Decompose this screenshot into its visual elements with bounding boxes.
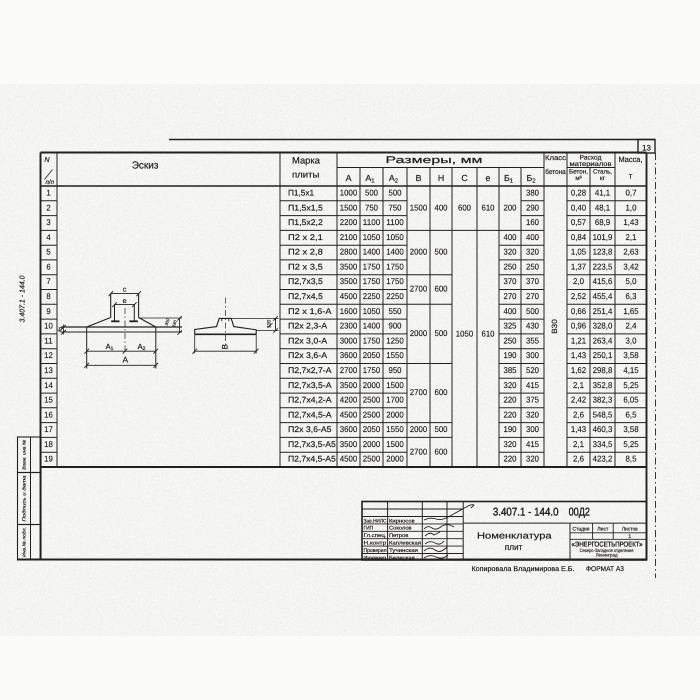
svg-text:Номенклатура: Номенклатура [477,531,552,541]
svg-text:9: 9 [46,307,51,316]
svg-text:0,66: 0,66 [571,306,587,316]
svg-text:Марка: Марка [292,155,321,166]
svg-text:300: 300 [526,424,539,434]
svg-text:1100: 1100 [386,217,404,227]
svg-text:4500: 4500 [340,291,358,301]
svg-text:520: 520 [526,365,539,375]
svg-text:220: 220 [504,454,517,464]
svg-text:500: 500 [389,188,402,198]
svg-text:320: 320 [526,247,539,257]
svg-text:П2,7х3,5-А: П2,7х3,5-А [288,381,332,390]
svg-text:1,62: 1,62 [571,365,587,375]
svg-text:3500: 3500 [340,276,358,286]
svg-text:П2х 3,6-А5: П2х 3,6-А5 [288,425,332,434]
svg-text:00Д2: 00Д2 [569,507,590,519]
svg-text:400: 400 [526,232,539,242]
svg-text:400: 400 [435,202,448,212]
svg-text:Размеры, мм: Размеры, мм [386,155,483,166]
svg-text:1750: 1750 [363,261,381,271]
svg-text:6,5: 6,5 [626,409,637,419]
svg-text:П1,5х2,2: П1,5х2,2 [288,218,323,227]
svg-text:1550: 1550 [386,350,404,360]
svg-text:352,8: 352,8 [593,380,613,390]
svg-text:2500: 2500 [363,395,381,405]
svg-text:т: т [629,172,633,181]
svg-text:3500: 3500 [340,380,358,390]
svg-text:1050: 1050 [456,328,474,338]
svg-text:600: 600 [435,387,448,397]
svg-text:415,6: 415,6 [593,276,613,286]
svg-text:2700: 2700 [410,284,428,294]
svg-text:3600: 3600 [340,424,358,434]
svg-text:Класс: Класс [545,155,567,162]
svg-text:4500: 4500 [340,409,358,419]
svg-text:220: 220 [504,395,517,405]
svg-text:П1,5х1: П1,5х1 [288,189,315,198]
svg-text:13: 13 [642,144,651,153]
svg-text:200: 200 [504,202,517,212]
svg-text:18: 18 [44,440,53,449]
svg-text:1,05: 1,05 [571,247,587,257]
svg-text:375: 375 [526,395,539,405]
svg-text:В: В [416,173,422,183]
svg-text:320: 320 [526,409,539,419]
svg-text:2050: 2050 [363,350,381,360]
svg-text:950: 950 [389,365,402,375]
svg-text:3500: 3500 [340,261,358,271]
svg-text:П2,7х3,5-А5: П2,7х3,5-А5 [288,440,336,449]
svg-text:Гл.спец.: Гл.спец. [364,533,387,539]
svg-text:3: 3 [46,218,51,227]
svg-text:2,42: 2,42 [571,395,587,405]
svg-text:3.407.1 - 144.0: 3.407.1 - 144.0 [18,276,27,323]
svg-text:5: 5 [46,248,51,257]
svg-text:N: N [44,155,50,164]
svg-text:14: 14 [44,381,53,390]
svg-text:250,1: 250,1 [593,350,613,360]
svg-text:415: 415 [526,380,539,390]
svg-text:2000: 2000 [386,454,404,464]
svg-text:Кирносов: Кирносов [389,518,415,524]
svg-text:ГИП: ГИП [364,526,374,532]
svg-text:П2х 3,6-А: П2х 3,6-А [288,351,328,360]
svg-text:Копировала Владимирова Е.Б.: Копировала Владимирова Е.Б. [472,566,575,573]
svg-text:2,1: 2,1 [626,232,637,242]
svg-text:263,4: 263,4 [593,335,613,345]
svg-text:1750: 1750 [363,335,381,345]
svg-text:П2,7х3,5: П2,7х3,5 [288,277,323,286]
svg-text:1750: 1750 [386,261,404,271]
svg-text:П2 х 2,1: П2 х 2,1 [288,233,323,242]
svg-text:600: 600 [435,446,448,456]
svg-text:2,52: 2,52 [571,291,587,301]
svg-text:1000: 1000 [340,188,358,198]
svg-text:15: 15 [44,396,53,405]
svg-text:П2,7х2,7-А: П2,7х2,7-А [288,366,332,375]
svg-text:17: 17 [44,425,53,434]
svg-text:190: 190 [504,424,517,434]
svg-text:1,21: 1,21 [571,335,587,345]
svg-text:19: 19 [44,455,53,464]
svg-text:1,37: 1,37 [571,261,587,271]
svg-text:1700: 1700 [386,395,404,405]
svg-text:298,8: 298,8 [593,365,613,375]
svg-text:334,5: 334,5 [593,439,613,449]
svg-text:2,4: 2,4 [626,321,637,331]
svg-text:П2,7х4,5-А: П2,7х4,5-А [288,410,332,419]
svg-text:2,63: 2,63 [623,247,639,257]
svg-text:1750: 1750 [363,276,381,286]
svg-text:270: 270 [526,291,539,301]
svg-text:7: 7 [46,277,51,286]
svg-text:1600: 1600 [340,306,358,316]
svg-text:320: 320 [504,380,517,390]
svg-text:2,6: 2,6 [573,409,584,419]
svg-text:320: 320 [504,439,517,449]
svg-text:500: 500 [435,328,448,338]
svg-text:4: 4 [46,233,51,242]
svg-text:2300: 2300 [340,321,358,331]
svg-text:3,58: 3,58 [623,350,639,360]
svg-text:4200: 4200 [340,395,358,405]
svg-text:2100: 2100 [340,232,358,242]
svg-text:1750: 1750 [386,276,404,286]
svg-text:325: 325 [504,321,517,331]
svg-text:610: 610 [482,202,495,212]
svg-text:1,65: 1,65 [623,306,639,316]
svg-text:3600: 3600 [340,350,358,360]
svg-text:6,3: 6,3 [626,291,637,301]
svg-text:320: 320 [526,454,539,464]
svg-text:5,25: 5,25 [623,439,639,449]
svg-text:2000: 2000 [386,409,404,419]
svg-text:370: 370 [526,276,539,286]
svg-text:8: 8 [46,292,51,301]
svg-text:251,4: 251,4 [593,306,613,316]
svg-text:С: С [461,173,468,183]
svg-text:1,43: 1,43 [571,350,587,360]
svg-text:382,3: 382,3 [593,395,613,405]
svg-text:Эскиз: Эскиз [132,161,159,172]
svg-text:300: 300 [526,350,539,360]
svg-text:415: 415 [526,439,539,449]
svg-text:П2х 3,0-А: П2х 3,0-А [288,336,328,345]
svg-text:Листов: Листов [622,526,638,532]
svg-text:1400: 1400 [363,321,381,331]
svg-text:1250: 1250 [386,335,404,345]
svg-text:2250: 2250 [363,291,381,301]
svg-text:455,4: 455,4 [593,291,613,301]
svg-text:1,43: 1,43 [623,217,639,227]
svg-text:2700: 2700 [410,446,428,456]
svg-text:2500: 2500 [363,454,381,464]
svg-text:Н: Н [438,173,444,183]
svg-text:600: 600 [458,202,471,212]
svg-text:0,96: 0,96 [571,321,587,331]
svg-text:0,84: 0,84 [571,232,587,242]
svg-text:250: 250 [504,335,517,345]
svg-text:В: В [221,344,230,349]
svg-text:3000: 3000 [340,335,358,345]
svg-text:Н.контр: Н.контр [364,541,387,547]
svg-text:1050: 1050 [363,232,381,242]
svg-text:м³: м³ [575,175,581,182]
svg-text:А: А [346,173,352,183]
svg-text:355: 355 [526,335,539,345]
svg-text:3500: 3500 [340,439,358,449]
svg-text:610: 610 [482,328,495,338]
svg-text:123,8: 123,8 [593,247,613,257]
svg-text:2,6: 2,6 [573,454,584,464]
svg-text:Зав.НИЛС: Зав.НИЛС [364,518,387,524]
svg-text:2,0: 2,0 [573,276,584,286]
svg-text:3,0: 3,0 [626,335,637,345]
svg-text:1500: 1500 [410,202,428,212]
svg-text:«ЭНЕРГОСЕТЬПРОЕКТ»: «ЭНЕРГОСЕТЬПРОЕКТ» [572,541,643,548]
svg-text:3.407.1 - 144.0: 3.407.1 - 144.0 [493,507,559,519]
svg-text:2,1: 2,1 [573,380,584,390]
svg-text:290: 290 [526,202,539,212]
svg-text:320: 320 [504,247,517,257]
svg-text:8,5: 8,5 [626,454,637,464]
svg-text:Петров: Петров [389,533,409,539]
svg-text:3,58: 3,58 [623,424,639,434]
svg-text:2700: 2700 [340,365,358,375]
svg-text:900: 900 [389,321,402,331]
svg-text:250: 250 [526,261,539,271]
svg-text:П2,7х4,5: П2,7х4,5 [288,292,323,301]
svg-text:370: 370 [504,276,517,286]
svg-text:0,57: 0,57 [571,217,587,227]
svg-text:В30: В30 [550,319,559,334]
svg-text:бетона: бетона [545,168,565,176]
svg-text:0,7: 0,7 [626,188,637,198]
svg-text:223,5: 223,5 [593,261,613,271]
svg-text:П2 х 3,5: П2 х 3,5 [288,262,323,271]
svg-text:550: 550 [389,306,402,316]
svg-text:кг: кг [600,175,606,182]
svg-text:Масса,: Масса, [619,155,643,164]
svg-text:Проверил: Проверил [364,548,387,554]
svg-text:Взам. инв.№: Взам. инв.№ [22,440,27,470]
svg-text:2000: 2000 [363,439,381,449]
svg-text:380: 380 [526,188,539,198]
svg-text:385: 385 [504,365,517,375]
svg-text:П2 х 1,6-А: П2 х 1,6-А [288,307,332,316]
svg-text:Инв.№ подл.: Инв.№ подл. [22,527,27,557]
svg-text:41,1: 41,1 [595,188,611,198]
svg-text:750: 750 [389,202,402,212]
svg-text:12: 12 [44,351,53,360]
svg-text:1,0: 1,0 [626,202,637,212]
svg-text:270: 270 [504,291,517,301]
svg-text:0,28: 0,28 [571,188,587,198]
svg-text:Тучинская: Тучинская [389,548,418,554]
svg-text:500: 500 [365,188,378,198]
svg-text:2: 2 [46,203,51,212]
svg-text:Стадия: Стадия [573,526,590,532]
svg-text:500: 500 [435,247,448,257]
svg-text:5,0: 5,0 [626,276,637,286]
svg-text:400: 400 [504,306,517,316]
svg-text:Белецкая: Белецкая [389,555,415,561]
svg-text:6,05: 6,05 [623,395,639,405]
svg-text:68,9: 68,9 [595,217,611,227]
svg-text:0,40: 0,40 [571,202,587,212]
svg-text:400: 400 [504,232,517,242]
svg-text:423,2: 423,2 [593,454,613,464]
svg-text:2000: 2000 [410,328,428,338]
svg-text:4500: 4500 [340,454,358,464]
svg-text:2200: 2200 [340,217,358,227]
svg-text:Соколов: Соколов [389,526,412,532]
svg-text:2700: 2700 [410,387,428,397]
svg-text:2,1: 2,1 [573,439,584,449]
svg-text:материалов: материалов [570,161,613,168]
svg-text:750: 750 [365,202,378,212]
svg-text:1400: 1400 [363,247,381,257]
svg-text:п/п: п/п [46,179,55,186]
svg-text:1500: 1500 [386,380,404,390]
svg-text:П2,7х4,2-А: П2,7х4,2-А [288,396,332,405]
svg-text:10: 10 [44,322,53,331]
svg-text:с: с [123,287,127,294]
svg-text:220: 220 [504,409,517,419]
svg-text:4,15: 4,15 [623,365,639,375]
svg-text:2000: 2000 [410,247,428,257]
svg-text:190: 190 [504,350,517,360]
svg-text:Инженер: Инженер [364,555,387,561]
svg-text:плиты: плиты [292,170,319,180]
svg-text:2500: 2500 [363,409,381,419]
svg-text:2250: 2250 [386,291,404,301]
svg-text:А: А [123,355,129,365]
svg-text:плит: плит [505,542,523,552]
svg-text:1050: 1050 [386,232,404,242]
svg-text:328,0: 328,0 [593,321,613,331]
svg-text:2000: 2000 [363,380,381,390]
svg-text:Лист: Лист [597,526,609,532]
svg-text:1400: 1400 [386,247,404,257]
svg-text:2800: 2800 [340,247,358,257]
svg-text:3,42: 3,42 [623,261,639,271]
svg-text:Ленинград: Ленинград [596,552,618,558]
svg-text:460,3: 460,3 [593,424,613,434]
svg-text:П2 х 2,8: П2 х 2,8 [288,248,323,257]
svg-text:11: 11 [44,336,53,345]
svg-text:П2х 2,3-А: П2х 2,3-А [288,322,328,331]
svg-text:1,43: 1,43 [571,424,587,434]
svg-text:1500: 1500 [340,202,358,212]
svg-text:1750: 1750 [363,365,381,375]
svg-text:1: 1 [628,534,631,540]
svg-text:е: е [123,298,127,305]
svg-text:160: 160 [526,217,539,227]
svg-text:500: 500 [435,424,448,434]
svg-text:101,9: 101,9 [593,232,613,242]
svg-text:548,5: 548,5 [593,409,613,419]
svg-text:Каплевская: Каплевская [389,541,421,547]
svg-text:1: 1 [46,189,51,198]
svg-text:2050: 2050 [363,424,381,434]
svg-text:1550: 1550 [386,424,404,434]
svg-text:1100: 1100 [363,217,381,227]
svg-text:1050: 1050 [363,306,381,316]
svg-text:ФОРМАТ А3: ФОРМАТ А3 [586,566,624,573]
svg-text:600: 600 [435,284,448,294]
svg-text:1500: 1500 [386,439,404,449]
svg-text:П1,5х1,5: П1,5х1,5 [288,203,323,212]
svg-text:48,1: 48,1 [595,202,611,212]
svg-text:Подпись и дата: Подпись и дата [22,475,27,522]
svg-text:е: е [486,173,491,183]
svg-text:430: 430 [526,321,539,331]
svg-text:500: 500 [526,306,539,316]
svg-text:6: 6 [46,262,51,271]
svg-text:2000: 2000 [410,424,428,434]
svg-text:250: 250 [504,261,517,271]
svg-text:5,25: 5,25 [623,380,639,390]
svg-text:13: 13 [44,366,53,375]
svg-text:П2,7х4,5-А5: П2,7х4,5-А5 [288,455,336,464]
svg-text:16: 16 [44,410,53,419]
